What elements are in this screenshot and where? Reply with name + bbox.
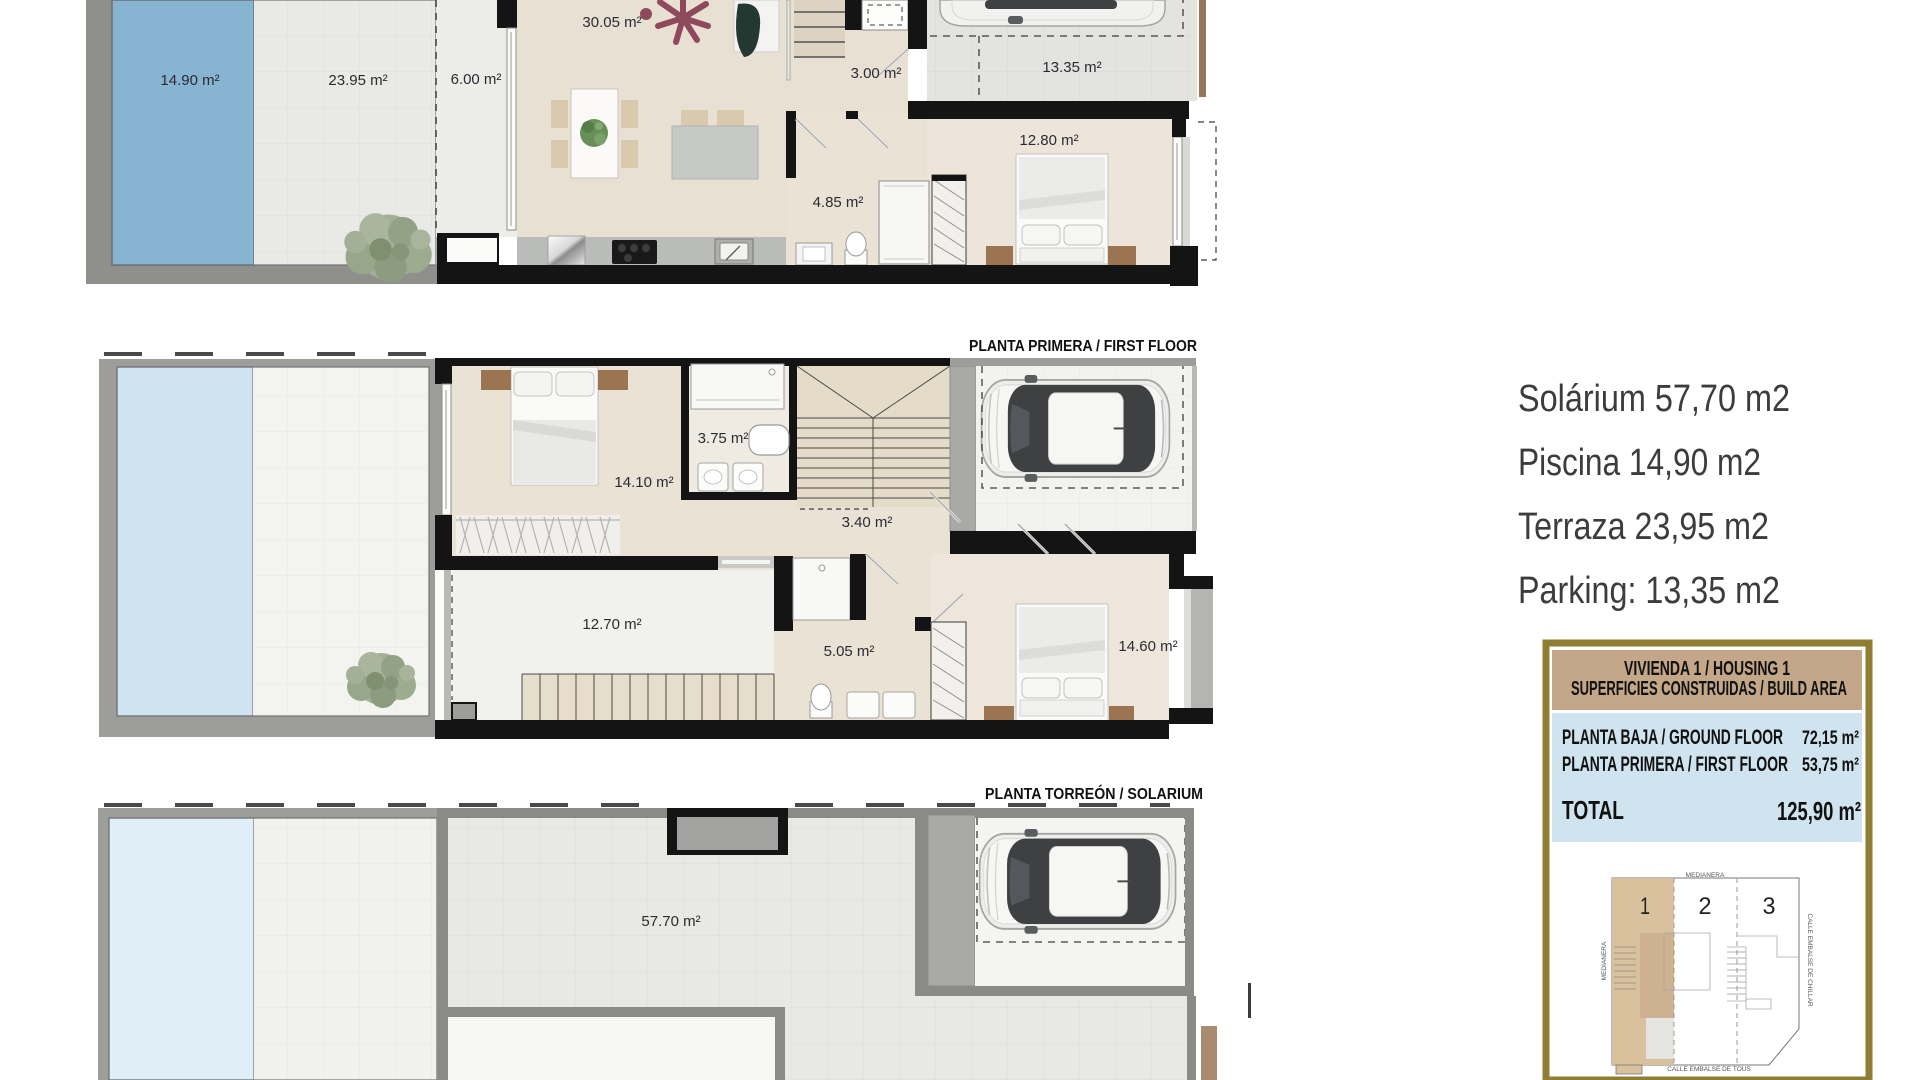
svg-text:5.05 m²: 5.05 m² <box>824 643 875 660</box>
svg-text:12.80 m²: 12.80 m² <box>1019 132 1078 149</box>
svg-text:72,15 m²: 72,15 m² <box>1802 728 1859 749</box>
svg-text:VIVIENDA 1 / HOUSING 1: VIVIENDA 1 / HOUSING 1 <box>1624 658 1790 680</box>
svg-text:Piscina 14,90 m2: Piscina 14,90 m2 <box>1518 442 1761 484</box>
svg-text:CALLE EMBALSE DE TOUS: CALLE EMBALSE DE TOUS <box>1667 1066 1751 1073</box>
svg-text:13.35 m²: 13.35 m² <box>1042 59 1101 76</box>
svg-text:23.95 m²: 23.95 m² <box>328 72 387 89</box>
svg-text:TOTAL: TOTAL <box>1562 795 1624 825</box>
svg-text:MEDIANERA: MEDIANERA <box>1686 872 1725 879</box>
svg-text:4.85 m²: 4.85 m² <box>813 194 864 211</box>
svg-text:3.40 m²: 3.40 m² <box>842 514 893 531</box>
svg-text:14.90 m²: 14.90 m² <box>160 72 219 89</box>
svg-text:CALLE EMBALSE DE CHILLAR: CALLE EMBALSE DE CHILLAR <box>1806 913 1813 1007</box>
svg-text:2: 2 <box>1699 893 1712 920</box>
svg-text:PLANTA TORREÓN / SOLARIUM: PLANTA TORREÓN / SOLARIUM <box>985 784 1203 803</box>
svg-text:14.10 m²: 14.10 m² <box>614 474 673 491</box>
svg-text:125,90 m²: 125,90 m² <box>1777 796 1861 826</box>
svg-text:14.60 m²: 14.60 m² <box>1118 638 1177 655</box>
svg-text:Solárium 57,70 m2: Solárium 57,70 m2 <box>1518 378 1790 420</box>
svg-text:MEDIANERA: MEDIANERA <box>1601 941 1608 980</box>
svg-text:12.70 m²: 12.70 m² <box>582 616 641 633</box>
svg-text:57.70 m²: 57.70 m² <box>641 913 700 930</box>
svg-text:3.00 m²: 3.00 m² <box>851 65 902 82</box>
svg-text:PLANTA BAJA / GROUND FLOOR: PLANTA BAJA / GROUND FLOOR <box>1562 726 1783 749</box>
svg-text:30.05 m²: 30.05 m² <box>582 14 641 31</box>
svg-text:3: 3 <box>1763 893 1776 920</box>
svg-text:SUPERFICIES CONSTRUIDAS / BUIL: SUPERFICIES CONSTRUIDAS / BUILD AREA <box>1571 678 1847 700</box>
svg-text:PLANTA PRIMERA / FIRST FLOOR: PLANTA PRIMERA / FIRST FLOOR <box>1562 753 1788 776</box>
svg-text:Parking: 13,35 m2: Parking: 13,35 m2 <box>1518 570 1780 612</box>
svg-text:6.00 m²: 6.00 m² <box>451 71 502 88</box>
svg-text:3.75 m²: 3.75 m² <box>698 430 749 447</box>
svg-text:1: 1 <box>1640 893 1650 920</box>
svg-text:53,75 m²: 53,75 m² <box>1802 755 1859 776</box>
svg-text:Terraza 23,95 m2: Terraza 23,95 m2 <box>1518 506 1769 548</box>
svg-text:PLANTA PRIMERA / FIRST FLOOR: PLANTA PRIMERA / FIRST FLOOR <box>969 338 1197 355</box>
